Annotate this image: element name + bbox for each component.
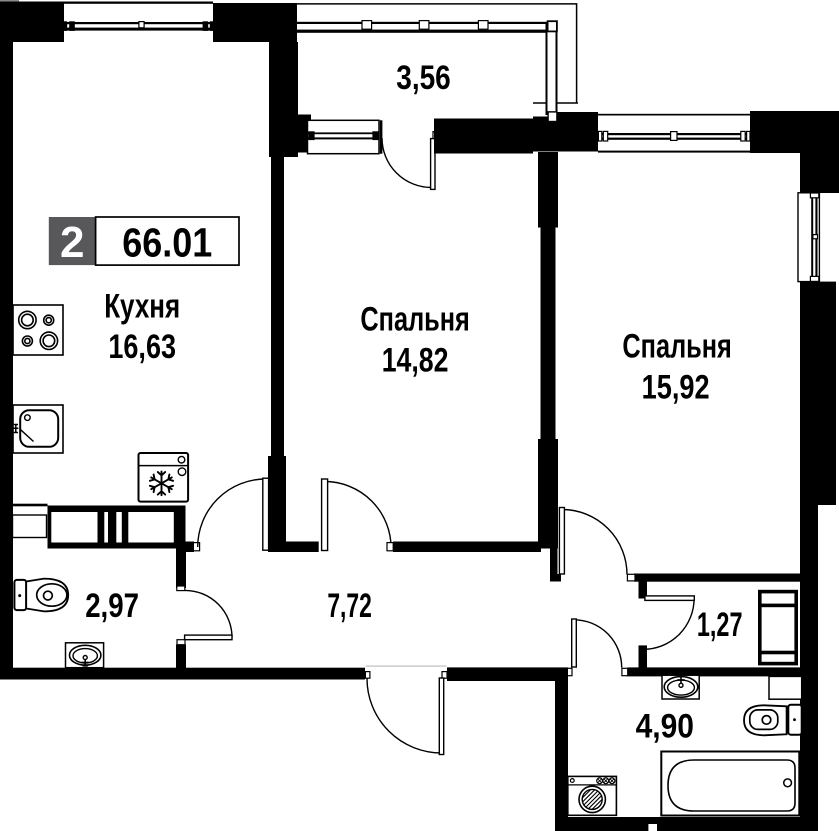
svg-text:7,72: 7,72 xyxy=(327,587,372,625)
svg-text:2,97: 2,97 xyxy=(85,587,139,625)
svg-text:15,92: 15,92 xyxy=(642,369,710,407)
svg-text:1,27: 1,27 xyxy=(697,606,743,644)
svg-text:Кухня: Кухня xyxy=(104,288,180,326)
svg-text:16,63: 16,63 xyxy=(108,328,176,366)
svg-text:3,56: 3,56 xyxy=(396,59,451,97)
svg-text:Спальня: Спальня xyxy=(622,328,731,366)
svg-text:66.01: 66.01 xyxy=(122,219,212,265)
svg-text:2: 2 xyxy=(60,218,84,267)
svg-text:Спальня: Спальня xyxy=(360,301,469,339)
svg-text:4,90: 4,90 xyxy=(636,708,694,746)
svg-text:14,82: 14,82 xyxy=(382,342,449,380)
